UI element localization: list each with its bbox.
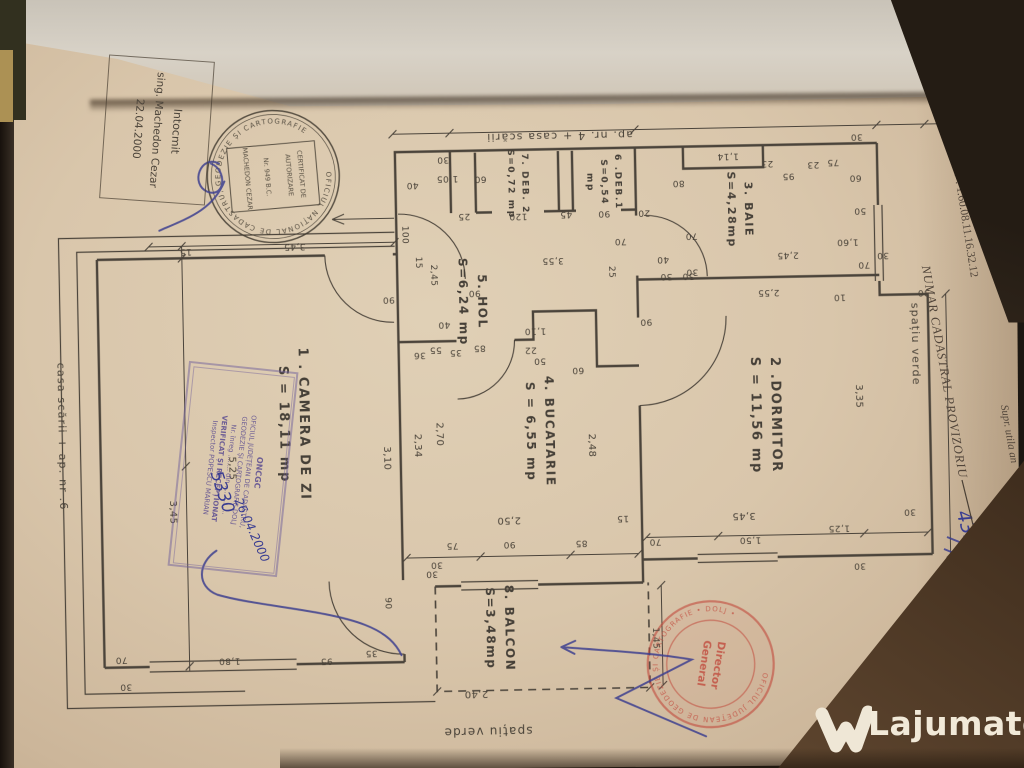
dimension-label: 2,55 <box>758 287 780 297</box>
dimension-label: 1,25 <box>828 523 850 533</box>
svg-text:OFICIUL NAȚIONAL DE CADASTRU,: OFICIUL NAȚIONAL DE CADASTRU, GEODEZIE Ș… <box>209 112 337 240</box>
dimension-label: 40 <box>657 254 669 264</box>
dimension-label: 100 <box>399 226 409 245</box>
dimension-label: 40 <box>406 180 418 190</box>
dimension-label: 2,50 <box>497 514 521 525</box>
dimension-label: 2,40 <box>464 688 488 699</box>
dimension-label: 50 <box>854 205 866 215</box>
dimension-label: 3,45 <box>732 510 756 521</box>
intocmit-text: Intocmit sing. Machedon Cezar 22.04.2000 <box>123 53 191 207</box>
dimension-label: 2,48 <box>586 433 597 457</box>
office-stamp-border: ONCGC OFICIUL JUDEȚEAN DE CADASTRU, GEOD… <box>173 366 295 574</box>
dimension-label: 40 <box>438 319 450 329</box>
watermark-logo-icon <box>812 702 872 762</box>
dimension-label: 2,45 <box>428 265 438 287</box>
room-area: S=3,48mp <box>481 585 501 672</box>
dimension-label: 15 <box>179 246 191 256</box>
dimension-label: 50 <box>534 355 546 365</box>
room-name: 2 .DORMITOR <box>764 356 786 473</box>
room-name: 6 .DEB.1 <box>609 154 624 210</box>
dimension-label: 30 <box>426 568 438 578</box>
dimension-label: 22 <box>524 345 536 355</box>
dimension-label: 1,80 <box>219 655 241 665</box>
red-stamp: OFICIUL JUDEȚEAN DE GEODEZIE ȘI CARTOGRA… <box>639 592 783 736</box>
room-area: S=0,72 mp <box>502 149 517 219</box>
dimension-label: 60 <box>572 365 584 375</box>
photographed-floor-plan-document: OFICIUL NAȚIONAL DE CADASTRU, GEODEZIE Ș… <box>0 0 1024 768</box>
dimension-label: 45 <box>560 209 572 219</box>
dimension-label: 2,70 <box>434 422 445 446</box>
certificate-line4: MACHEDON CEZAR <box>241 147 255 211</box>
national-stamp: OFICIUL NAȚIONAL DE CADASTRU, GEODEZIE Ș… <box>202 105 345 248</box>
room-name: 4. BUCATARIE <box>539 376 560 487</box>
national-stamp-ring-text: OFICIUL NAȚIONAL DE CADASTRU, GEODEZIE Ș… <box>209 112 337 240</box>
room-label: 4. BUCATARIES = 6,55 mp <box>521 376 560 487</box>
dimension-label: 90 <box>640 316 652 326</box>
dimension-label: 23 <box>807 159 819 169</box>
dimension-label: 75 <box>446 540 458 550</box>
dimension-label: 25 <box>606 266 616 278</box>
room-name: 5. HOL <box>472 257 492 345</box>
dimension-label: 36 <box>414 350 426 360</box>
dimension-label: 1,10 <box>524 325 546 335</box>
dimension-label: 60 <box>849 172 861 182</box>
dimension-label: 15 <box>617 513 629 523</box>
certificate-line2: AUTORIZARE <box>283 154 295 197</box>
room-area-unit: mp <box>581 154 596 210</box>
room-area: S=6,24 mp <box>453 258 473 346</box>
dimension-label: 85 <box>575 538 587 548</box>
dimension-label: 1,45 <box>650 627 660 649</box>
dimension-label: 60 <box>474 173 486 183</box>
certificate-line1: CERTIFICAT DE <box>295 150 307 198</box>
dimension-label: 3,10 <box>381 446 392 470</box>
dimension-label: 10 <box>833 292 845 302</box>
watermark-text: Lajumate.ro <box>868 704 1024 743</box>
area-label: spațiu verde <box>443 724 533 740</box>
room-name: 1 . CAMERA DE ZI <box>292 347 315 500</box>
dimension-label: 70 <box>685 230 697 240</box>
room-label: 2 .DORMITORS = 11,56 mp <box>744 356 787 474</box>
dimension-label: 95 <box>320 655 332 665</box>
dimension-label: 2,45 <box>777 249 799 259</box>
dimension-label: 70 <box>115 654 127 664</box>
balcony-dashed-outline <box>435 582 650 691</box>
dimension-label: 30 <box>877 250 889 260</box>
room-name: 8. BALCON <box>499 585 519 672</box>
room-area: S = 6,55 mp <box>521 376 542 487</box>
watermark: Lajumate.ro <box>812 694 1024 764</box>
room-name: 7. DEB. 2 <box>516 149 531 219</box>
dimension-label: 30 <box>437 154 449 164</box>
dimension-label: 1,05 <box>436 173 458 183</box>
dimension-label: 30 <box>686 266 698 276</box>
dimension-label: 23 <box>761 158 773 168</box>
dimension-label: 70 <box>614 236 626 246</box>
room-area: S=4,28mp <box>722 171 741 248</box>
dimension-label: 30 <box>904 506 916 516</box>
dimension-label: 25 <box>458 211 470 221</box>
dimension-label: 3,45 <box>284 241 306 251</box>
dimension-label: 30 <box>854 560 866 570</box>
certificate-line3: Nr. 949 B.C. <box>262 157 273 196</box>
dimension-label: 1,50 <box>739 534 761 544</box>
room-label: 5. HOLS=6,24 mp <box>453 257 492 346</box>
dimension-label: 2,34 <box>412 434 423 458</box>
room-label: 6 .DEB.1S=0,54mp <box>581 154 624 211</box>
dimension-label: 90 <box>382 294 394 304</box>
watermark-brand: Lajumate <box>868 704 1024 743</box>
dimension-label: 90 <box>503 539 515 549</box>
dimension-label: 30 <box>660 271 672 281</box>
dimension-label: 70 <box>858 259 870 269</box>
dimension-label: 95 <box>782 171 794 181</box>
intocmit-box: Intocmit sing. Machedon Cezar 22.04.2000 <box>99 54 215 205</box>
dimension-label: 80 <box>672 178 684 188</box>
room-area: S=0,54 <box>595 154 610 210</box>
dimension-label: 30 <box>120 681 132 691</box>
area-label: spațiu verde <box>908 303 923 386</box>
room-label: 7. DEB. 2S=0,72 mp <box>502 149 531 219</box>
dimension-label: 3,55 <box>542 255 564 265</box>
room-area: S = 11,56 mp <box>744 357 766 474</box>
dimension-label: 55 <box>429 344 441 354</box>
dimension-label: 70 <box>649 536 661 546</box>
dimension-label: 90 <box>382 597 392 609</box>
dimension-label: 15 <box>413 257 423 269</box>
dimension-label: 75 <box>827 157 839 167</box>
room-name: 3. BAIE <box>739 171 758 248</box>
dimension-label: 1,14 <box>717 151 739 161</box>
dimension-label: 35 <box>365 648 377 658</box>
dimension-label: 1,60 <box>837 236 859 246</box>
room-label: 3. BAIES=4,28mp <box>722 171 758 248</box>
dimension-label: 30 <box>850 131 862 141</box>
dimension-label: 20 <box>638 207 650 217</box>
office-stamp: ONCGC OFICIUL JUDEȚEAN DE CADASTRU, GEOD… <box>168 361 299 577</box>
room-label: 8. BALCONS=3,48mp <box>481 585 520 672</box>
dimension-label: 3,35 <box>853 384 864 408</box>
dimension-label: 35 <box>449 347 461 357</box>
